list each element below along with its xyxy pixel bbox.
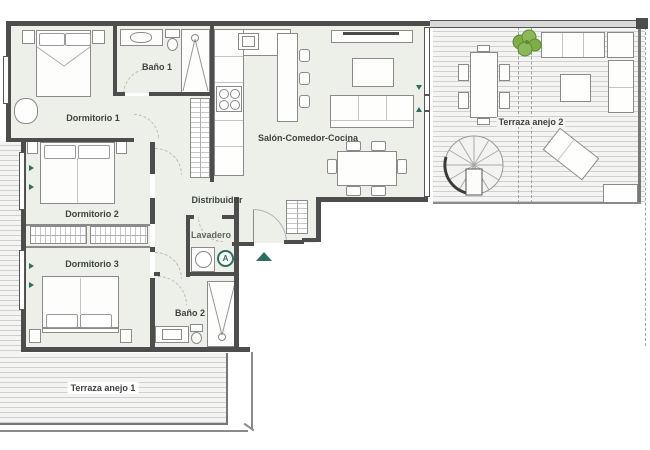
toilet-bowl bbox=[191, 332, 202, 344]
room-label-bano2: Baño 2 bbox=[175, 308, 205, 318]
room-label-terraza2: Terraza anejo 2 bbox=[497, 117, 566, 127]
nightstand bbox=[29, 329, 41, 343]
washing-machine-drum bbox=[195, 251, 212, 268]
outdoor-sofa-corner bbox=[607, 32, 634, 58]
armchair bbox=[14, 98, 38, 124]
counter-divider bbox=[215, 146, 243, 147]
wall-salon-bottom bbox=[316, 197, 428, 202]
pillow bbox=[78, 145, 110, 159]
pillow bbox=[65, 33, 91, 46]
terraza1-deck-left bbox=[0, 141, 21, 353]
burner-icon bbox=[230, 89, 240, 99]
burner-icon bbox=[219, 89, 229, 99]
nightstand bbox=[120, 329, 132, 343]
wall-dorm3-right-b bbox=[150, 278, 155, 352]
wall-bano1-bottom-left bbox=[113, 92, 125, 96]
kitchen-island bbox=[277, 33, 298, 122]
wardrobe-dormitorio2 bbox=[30, 226, 87, 244]
window-arrow-icon bbox=[29, 282, 34, 288]
wall-bano1-bottom-right bbox=[149, 92, 214, 96]
nightstand bbox=[27, 141, 38, 154]
room-label-dormitorio3: Dormitorio 3 bbox=[65, 259, 119, 269]
wall-lavadero-top-right bbox=[222, 215, 236, 219]
sofa bbox=[330, 95, 414, 128]
toilet bbox=[190, 324, 203, 332]
nightstand bbox=[92, 30, 105, 44]
dining-table bbox=[337, 151, 397, 186]
sink-basin bbox=[162, 329, 182, 340]
window-arrow-icon bbox=[29, 165, 34, 171]
outdoor-sofa-top bbox=[541, 32, 605, 58]
shower-glyph bbox=[181, 29, 210, 93]
outdoor-chair bbox=[499, 64, 510, 81]
bar-stool bbox=[299, 72, 310, 85]
outdoor-sofa-right bbox=[608, 60, 634, 113]
room-label-dormitorio1: Dormitorio 1 bbox=[66, 113, 120, 123]
wall-top bbox=[6, 21, 430, 26]
window-dormitorio1 bbox=[3, 56, 9, 104]
terraza1-outer-edge-h bbox=[0, 430, 248, 432]
wall-lavadero-top-left bbox=[186, 215, 194, 219]
burner-icon bbox=[219, 100, 229, 110]
bed-center-line bbox=[80, 278, 81, 314]
wall-bano2-top-post bbox=[154, 272, 160, 276]
closet-corridor bbox=[190, 98, 210, 178]
outdoor-coffee-table bbox=[560, 74, 591, 102]
terraza1-outer-edge-v bbox=[251, 352, 253, 430]
burner-icon bbox=[230, 100, 240, 110]
sliding-door-tick-1 bbox=[424, 94, 430, 96]
wardrobe-band-bottom bbox=[26, 246, 150, 248]
blanket-fold-lines bbox=[36, 46, 91, 68]
pillow bbox=[46, 314, 78, 328]
nightstand bbox=[22, 30, 35, 44]
outdoor-chair bbox=[477, 45, 490, 52]
dining-chair bbox=[346, 186, 361, 196]
coffee-table bbox=[352, 58, 394, 87]
terraza2-top-wall bbox=[430, 20, 648, 28]
counter-divider bbox=[215, 120, 243, 121]
terraza2-top-wall-cap bbox=[636, 18, 648, 29]
wall-hall-step bbox=[302, 238, 318, 242]
terraza2-storage-box bbox=[603, 184, 638, 203]
counter-divider bbox=[215, 82, 243, 83]
wall-hall-bottom-right bbox=[284, 240, 304, 244]
dining-chair bbox=[327, 159, 337, 174]
wall-bano1-left bbox=[113, 26, 117, 96]
window-arrow-icon bbox=[29, 263, 34, 269]
window-dormitorio2 bbox=[19, 152, 25, 210]
tv-screen bbox=[343, 32, 399, 35]
outdoor-chair bbox=[458, 92, 469, 109]
wall-dorm2-right-a bbox=[150, 142, 155, 174]
floor-plan: A D bbox=[0, 0, 650, 450]
outdoor-chair bbox=[477, 118, 490, 125]
room-label-terraza1: Terraza anejo 1 bbox=[68, 382, 139, 394]
wall-corridor bbox=[210, 96, 214, 182]
room-label-bano1: Baño 1 bbox=[142, 62, 172, 72]
room-label-lavadero: Lavadero bbox=[191, 230, 231, 240]
outdoor-chair bbox=[499, 92, 510, 109]
plot-boundary-dashed-right bbox=[645, 22, 646, 346]
wardrobe-dormitorio3 bbox=[90, 226, 148, 244]
shower-glyph bbox=[207, 281, 237, 347]
wardrobe-band-top bbox=[26, 224, 150, 226]
closet-entry bbox=[286, 200, 308, 234]
counter-divider bbox=[215, 56, 243, 57]
entrance-door-leaf bbox=[253, 210, 254, 243]
window-salon-sliding-door bbox=[424, 27, 430, 197]
pillow bbox=[39, 33, 65, 46]
bed-center-line bbox=[77, 158, 78, 203]
dining-chair bbox=[371, 141, 386, 151]
kitchen-sink-basin bbox=[242, 36, 255, 47]
nightstand bbox=[116, 141, 127, 154]
wall-bano2-top bbox=[186, 272, 238, 276]
wall-dorm3-right-a bbox=[150, 247, 155, 252]
sliding-door-arrow-icon bbox=[416, 107, 422, 112]
terraza2-bottom-edge bbox=[433, 202, 641, 204]
room-label-salon: Salón-Comedor-Cocina bbox=[258, 133, 358, 143]
terraza2-right-wall bbox=[638, 28, 641, 204]
bed-footboard bbox=[42, 328, 119, 333]
entrance-arrow-icon bbox=[256, 252, 272, 261]
wall-bottom bbox=[21, 347, 250, 352]
stove bbox=[216, 86, 242, 112]
pillow bbox=[44, 145, 76, 159]
window-arrow-icon bbox=[29, 184, 34, 190]
sliding-door-arrow-icon bbox=[416, 85, 422, 90]
toilet-bowl bbox=[167, 38, 178, 51]
spiral-staircase bbox=[441, 131, 507, 199]
dining-chair bbox=[371, 186, 386, 196]
wall-bano1-right bbox=[210, 26, 214, 96]
bar-stool bbox=[299, 95, 310, 108]
wall-dorm1-bottom bbox=[6, 138, 134, 142]
outdoor-dining-table bbox=[470, 52, 498, 118]
sink-basin bbox=[130, 32, 152, 43]
outdoor-chair bbox=[458, 64, 469, 81]
plant-icon bbox=[508, 28, 544, 60]
appliance-a-marker: A bbox=[217, 250, 234, 267]
pillow bbox=[80, 314, 112, 328]
wall-hall-right bbox=[316, 197, 321, 242]
room-label-distribuidor: Distribuidor bbox=[192, 195, 243, 205]
sliding-door-tick-2 bbox=[424, 110, 430, 112]
room-label-dormitorio2: Dormitorio 2 bbox=[65, 209, 119, 219]
toilet bbox=[165, 29, 180, 38]
bar-stool bbox=[299, 49, 310, 62]
window-dormitorio3 bbox=[19, 250, 25, 310]
dining-chair bbox=[397, 159, 407, 174]
wall-dorm2-right-b bbox=[150, 198, 155, 224]
wall-lavadero-left bbox=[186, 215, 190, 277]
